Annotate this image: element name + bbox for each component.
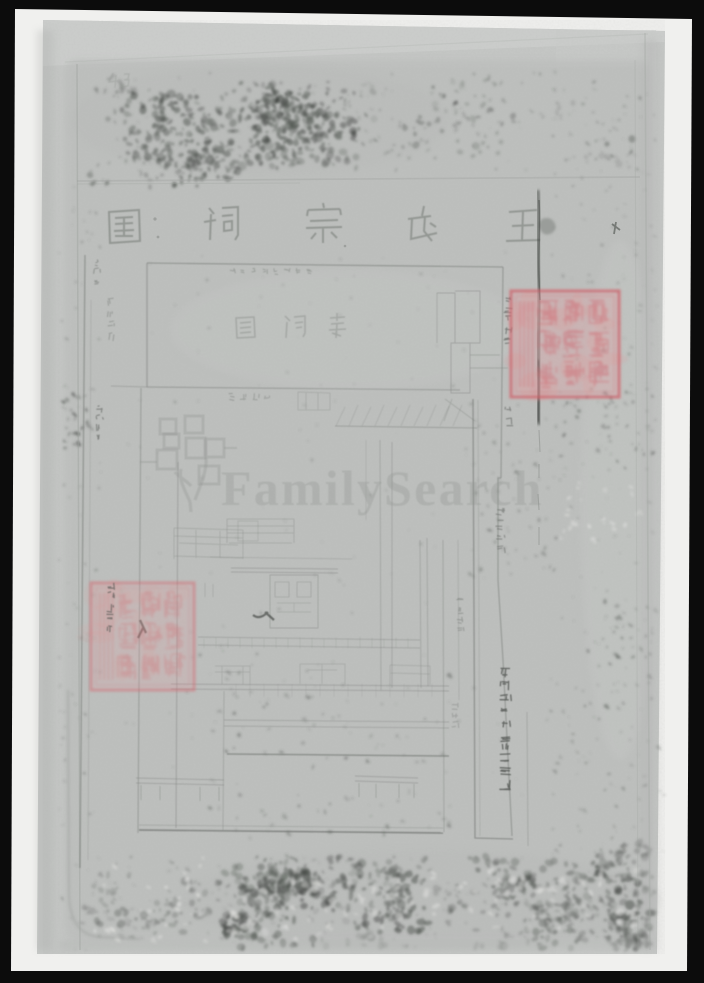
svg-text:FamilySearch: FamilySearch — [221, 460, 544, 516]
